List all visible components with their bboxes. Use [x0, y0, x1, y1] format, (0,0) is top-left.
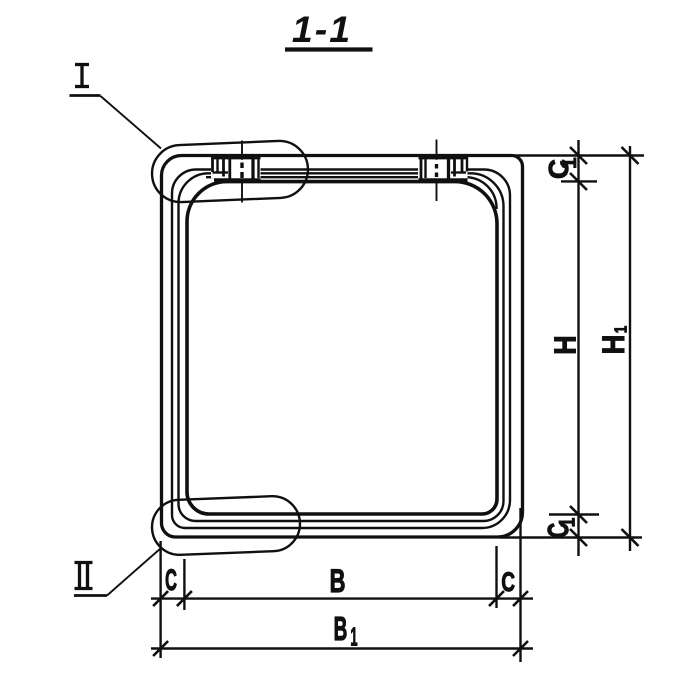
svg-text:B: B [330, 563, 346, 599]
svg-text:C: C [501, 567, 515, 597]
svg-text:1: 1 [612, 326, 631, 334]
svg-text:H: H [549, 335, 583, 354]
svg-text:B: B [334, 611, 348, 648]
svg-text:1: 1 [557, 157, 582, 169]
svg-text:H: H [596, 335, 631, 355]
svg-text:1-1: 1-1 [292, 8, 352, 50]
svg-text:1: 1 [556, 518, 580, 528]
svg-text:1: 1 [350, 623, 357, 652]
svg-text:C: C [165, 564, 177, 598]
